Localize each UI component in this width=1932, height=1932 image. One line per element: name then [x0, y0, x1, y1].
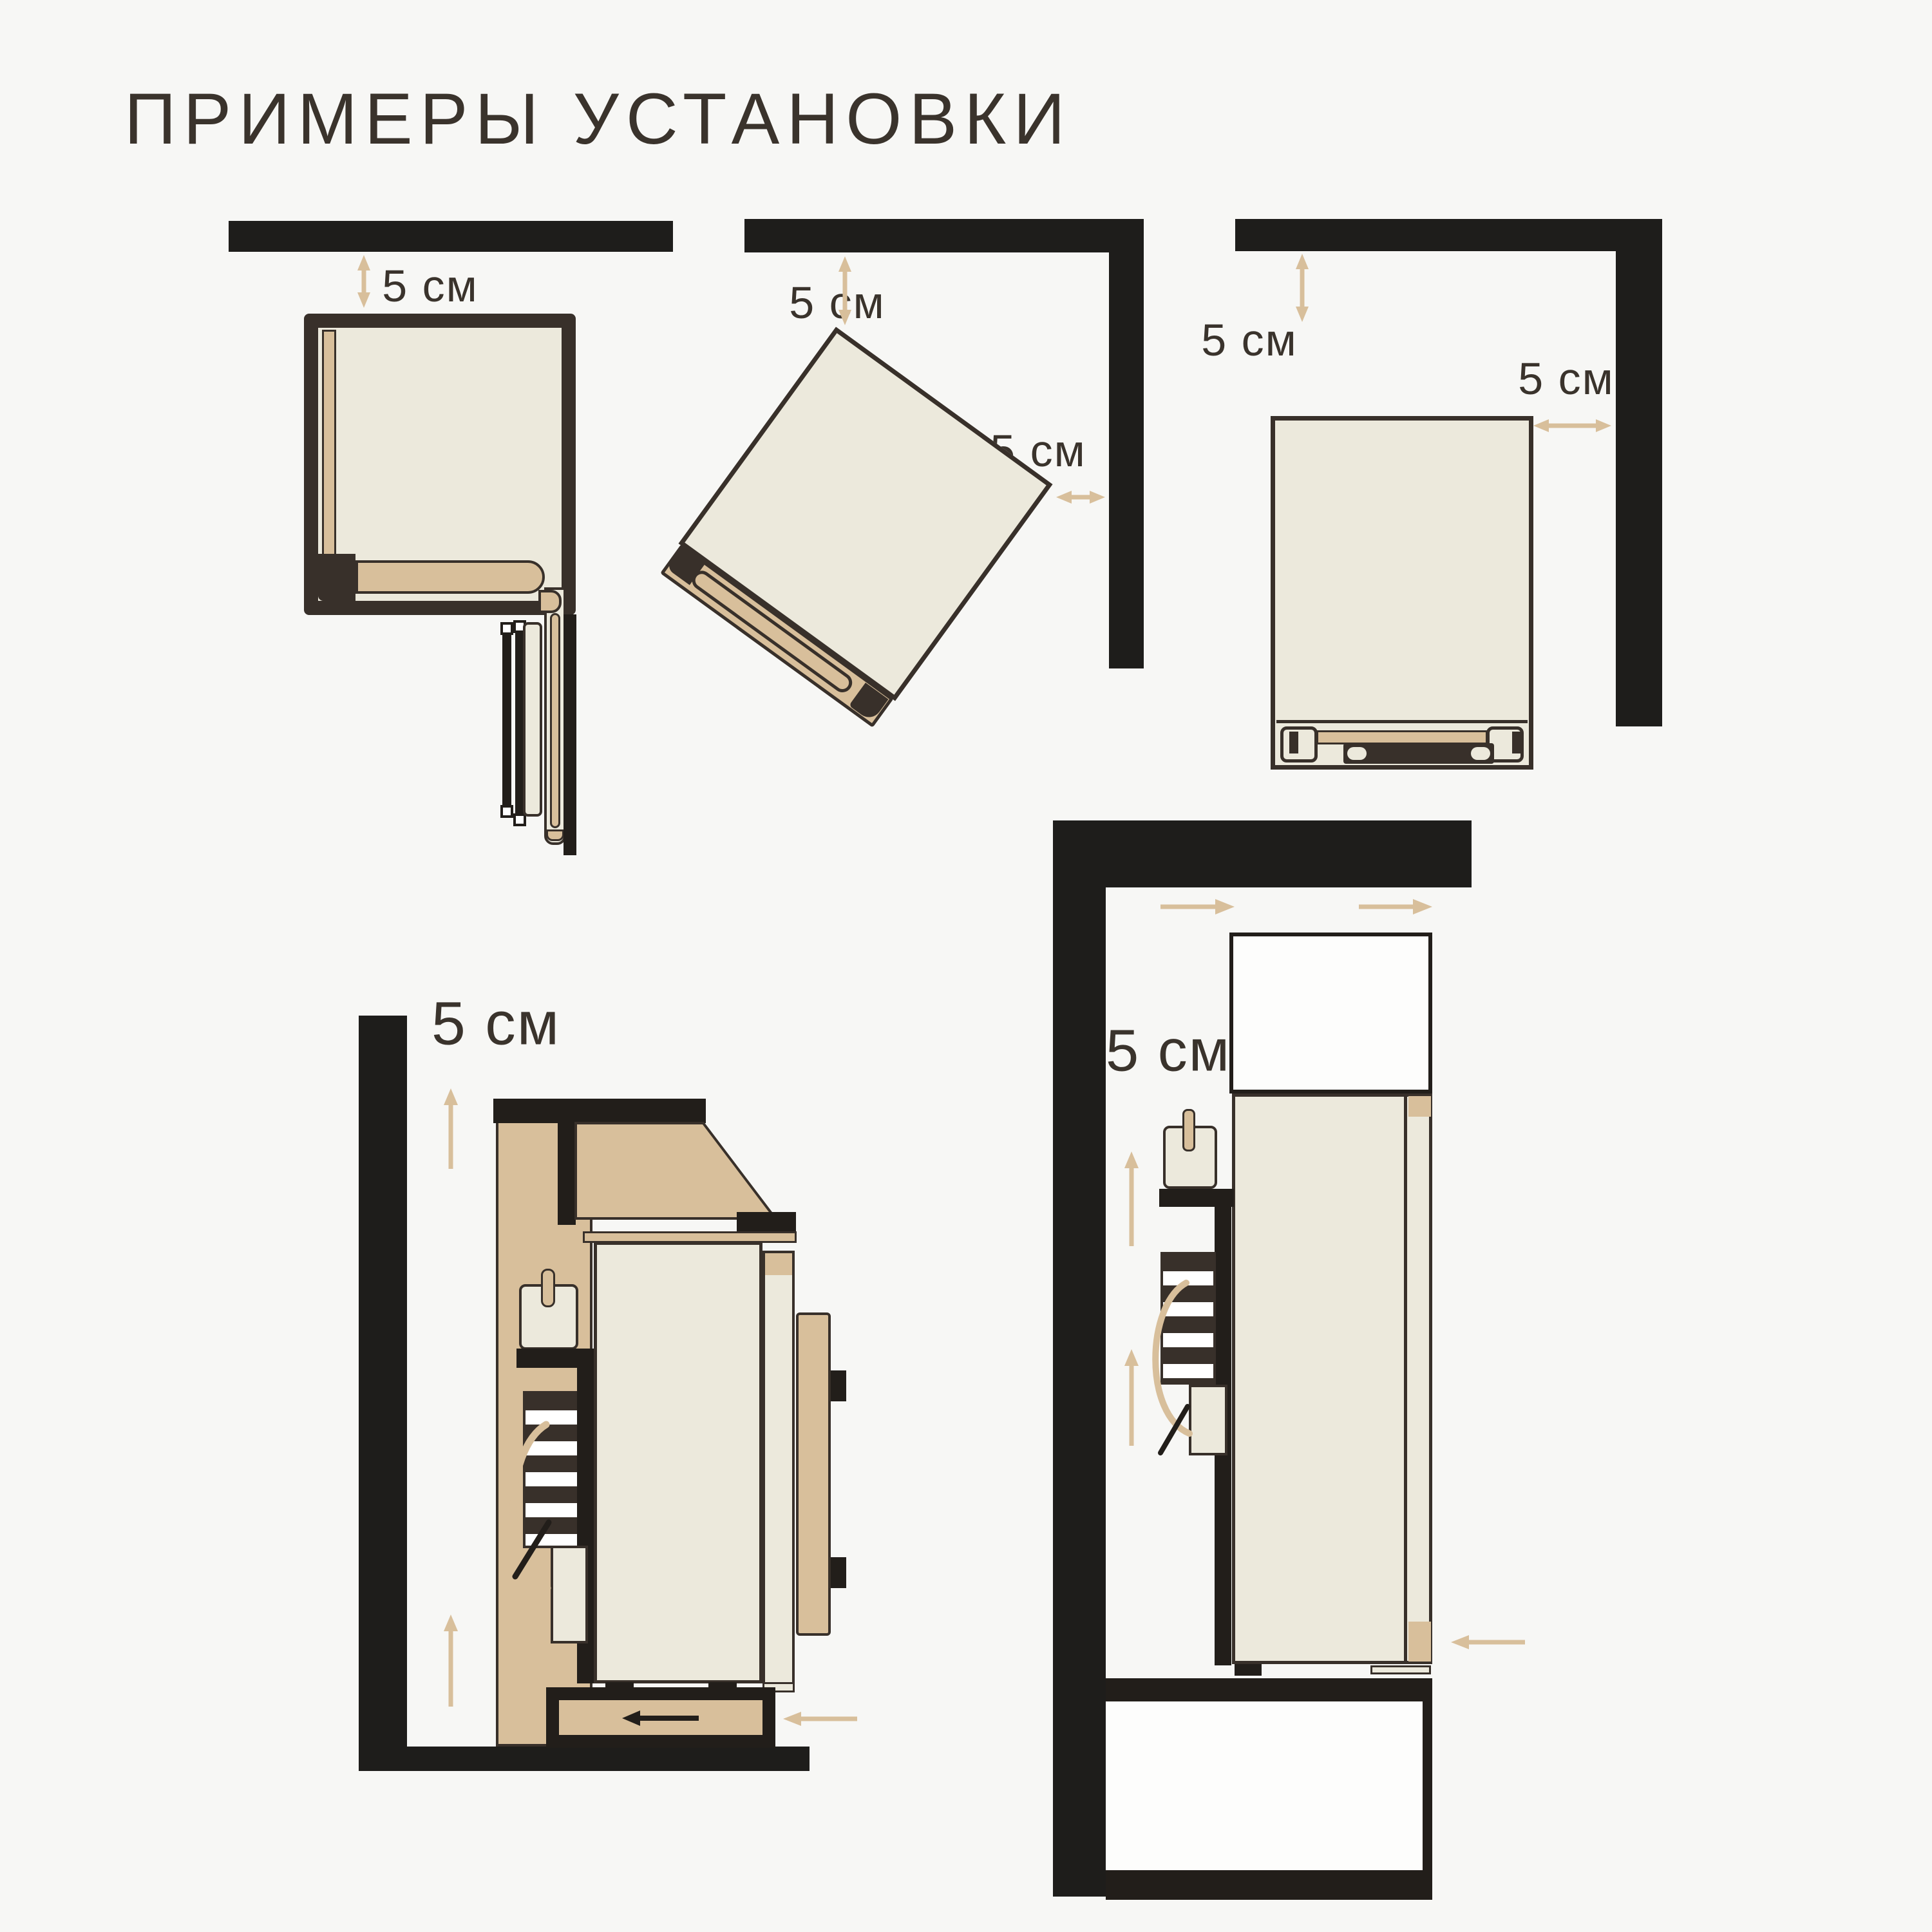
- door-edge-bar: [563, 614, 576, 855]
- rail-end-cap: [500, 805, 513, 818]
- airflow-arrow-left: [1451, 1635, 1525, 1649]
- wall-segment: [744, 219, 1144, 252]
- door-gasket-strip: [550, 613, 560, 828]
- wall-segment: [1109, 219, 1144, 668]
- handle-end-pill: [1471, 747, 1490, 760]
- upper-cabinet: [1229, 933, 1432, 1094]
- door-split-line: [1404, 1095, 1407, 1663]
- clearance-label: 5 см: [431, 989, 560, 1059]
- compressor-box: [551, 1546, 588, 1643]
- plug-prong: [1182, 1109, 1195, 1151]
- hinge-corner-block: [318, 554, 355, 601]
- clearance-label: 5 см: [1106, 1018, 1231, 1085]
- capillary-needle: [1160, 1406, 1188, 1453]
- airflow-arrow-up: [1124, 1151, 1139, 1446]
- clearance-label: 5 см: [1518, 353, 1615, 404]
- plug-prong: [541, 1269, 555, 1307]
- cabinet-top-plate: [493, 1099, 706, 1123]
- appliance-top-view: [1271, 416, 1533, 770]
- compressor-box: [1189, 1385, 1227, 1455]
- appliance-door-band: [355, 560, 545, 594]
- door-rail: [502, 626, 511, 809]
- door-bottom-tab: [546, 829, 564, 841]
- wall-segment: [1235, 219, 1662, 251]
- cabinet-hood-slope: [576, 1123, 775, 1218]
- door-hinge-bracket: [1280, 726, 1318, 762]
- door-bottom-trim: [1408, 1622, 1431, 1662]
- lower-cabinet-niche: [1106, 1678, 1432, 1900]
- clearance-label: 5 см: [789, 277, 885, 328]
- door-top-trim: [1408, 1096, 1431, 1117]
- condenser-coil: [523, 1391, 583, 1548]
- airflow-arrow-up: [444, 1088, 458, 1707]
- clearance-arrow: [357, 255, 370, 308]
- ventilated-plinth: [546, 1687, 775, 1748]
- appliance-top-view: [678, 327, 1052, 701]
- compressor-bracket: [1159, 1189, 1234, 1207]
- compressor-bracket: [516, 1349, 594, 1368]
- door-gasket-band: [1316, 730, 1488, 744]
- wall-segment: [1053, 820, 1106, 1897]
- door-top-trim: [765, 1253, 792, 1275]
- clearance-label: 5 см: [1201, 314, 1298, 366]
- cabinet-inner-stud: [558, 1123, 576, 1225]
- clearance-arrow: [1296, 254, 1611, 432]
- hood-end-plate: [737, 1212, 796, 1231]
- handle-mount-stub: [831, 1557, 846, 1588]
- installation-examples-poster: ПРИМЕРЫ УСТАНОВКИ 5 см 5 см 5 см: [0, 0, 1932, 1932]
- appliance-foot: [1235, 1664, 1262, 1676]
- door-handle-profile: [796, 1312, 831, 1636]
- door-split-line: [1276, 720, 1528, 723]
- handle-end-pill: [1347, 747, 1367, 760]
- wall-segment: [1053, 820, 1472, 887]
- appliance-rotated-group: [656, 327, 1052, 731]
- appliance-door-side: [762, 1251, 795, 1689]
- hinge-slot: [1512, 732, 1521, 753]
- hinge-slot: [1289, 732, 1298, 753]
- wall-segment: [359, 1016, 407, 1771]
- wall-segment: [229, 221, 673, 252]
- appliance-body-side: [1232, 1094, 1432, 1664]
- door-bottom-strip: [1370, 1665, 1431, 1674]
- airflow-arrow-right: [1160, 899, 1432, 914]
- appliance-body-side: [594, 1242, 762, 1683]
- floor-segment: [359, 1747, 810, 1771]
- appliance-side-seal: [322, 330, 336, 560]
- handle-mount-stub: [831, 1370, 846, 1401]
- door-liner-panel: [523, 622, 542, 817]
- condenser-coil: [1160, 1252, 1216, 1385]
- wall-segment: [1616, 219, 1662, 726]
- clearance-label: 5 см: [382, 260, 478, 312]
- rail-end-cap: [500, 622, 513, 635]
- door-hinge-tab: [538, 590, 562, 613]
- page-title: ПРИМЕРЫ УСТАНОВКИ: [124, 77, 1072, 160]
